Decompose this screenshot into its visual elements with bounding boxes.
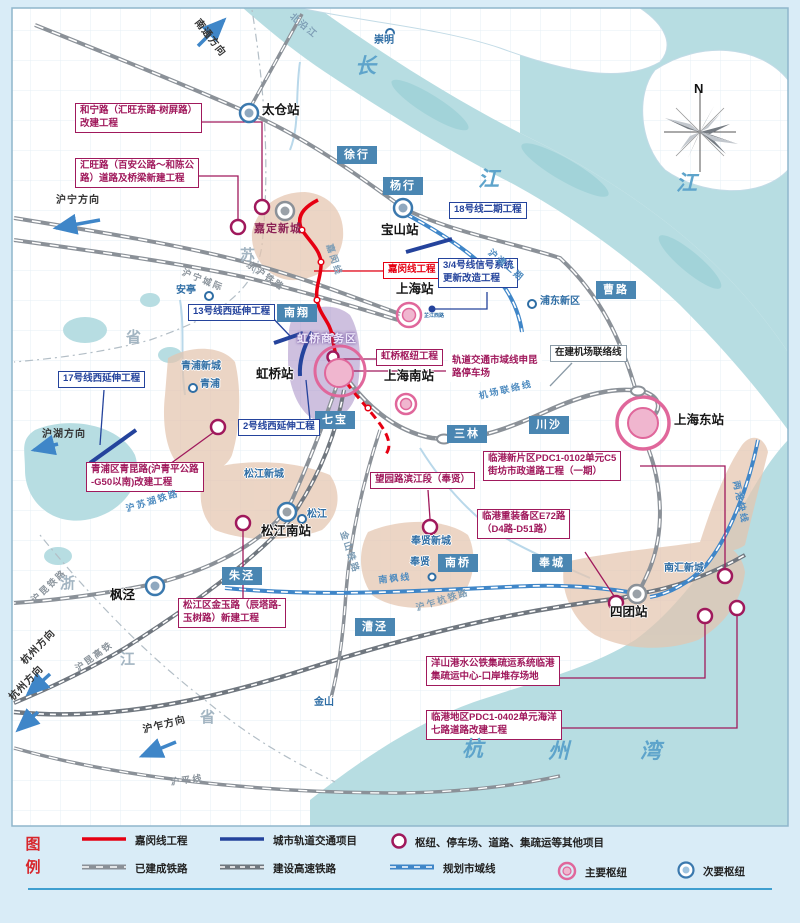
- station-label: 宝山站: [381, 224, 419, 237]
- legend-item-label: 城市轨道交通项目: [273, 835, 357, 848]
- project-label: 临港地区PDC1-0402单元海洋 七路道路改建工程: [426, 710, 562, 740]
- station-label: 虹桥站: [256, 368, 294, 381]
- station-label: 上海站: [396, 283, 434, 296]
- place-label: 青浦: [200, 380, 220, 390]
- town-label: 奉城: [532, 554, 572, 572]
- rail-legend-icon: [80, 860, 128, 879]
- legend-item-major: 主要枢纽: [556, 860, 627, 887]
- legend-item-ring: 枢纽、停车场、道路、集疏运等其他项目: [390, 832, 604, 855]
- legend-item-label: 主要枢纽: [585, 867, 627, 880]
- province-name-char: 省: [200, 710, 215, 725]
- new-town-label: 虹桥商务区: [297, 334, 357, 345]
- ring-legend-icon: [390, 832, 408, 855]
- red-line-legend-icon: [80, 832, 128, 851]
- blue-line-legend-icon: [218, 832, 266, 851]
- project-label: 嘉闵线工程: [383, 262, 441, 279]
- place-label: 松江新城: [244, 470, 284, 480]
- project-label: 在建机场联络线: [550, 345, 627, 362]
- town-label: 曹路: [596, 281, 636, 299]
- station-label: 太仓站: [262, 104, 300, 117]
- small-map-text: 芷江西路: [424, 314, 444, 319]
- shanghai-transit-map-page: N 图例 const data = JSON.parse(document.ge…: [0, 0, 800, 923]
- legend-item-minor: 次要枢纽: [676, 860, 745, 885]
- town-label: 南翔: [277, 304, 317, 322]
- town-label: 徐行: [337, 146, 377, 164]
- place-label: 金山: [314, 698, 334, 708]
- project-label: 虹桥枢纽工程: [376, 349, 443, 366]
- place-label: 南汇新城: [664, 564, 704, 574]
- station-label: 上海南站: [384, 370, 434, 383]
- legend-item-rail: 已建成铁路: [80, 860, 188, 879]
- project-label: 13号线西延伸工程: [188, 304, 275, 321]
- water-name-char: 湾: [640, 740, 661, 761]
- water-name-char: 州: [548, 740, 569, 761]
- project-label: 18号线二期工程: [449, 202, 527, 219]
- place-label: 奉贤: [410, 558, 430, 568]
- legend-item-label: 规划市域线: [443, 863, 496, 876]
- planned-legend-icon: [388, 860, 436, 879]
- project-label: 洋山港水公铁集疏运系统临港 集疏运中心-口岸堆存场地: [426, 656, 560, 686]
- town-label: 川沙: [529, 416, 569, 434]
- place-label: 浦东新区: [540, 297, 580, 307]
- place-label: 奉贤新城: [411, 537, 451, 547]
- province-name-char: 省: [126, 330, 141, 345]
- project-label: 临港重装备区E72路 （D4路-D51路）: [477, 509, 570, 539]
- legend-title: 图例: [24, 833, 42, 880]
- legend-item-blue-line: 城市轨道交通项目: [218, 832, 357, 851]
- legend-item-label: 建设高速铁路: [273, 863, 336, 876]
- project-label: 青浦区青昆路(沪青平公路 -G50以南)改建工程: [86, 462, 204, 492]
- legend-item-red-line: 嘉闵线工程: [80, 832, 188, 851]
- compass-north-label: N: [694, 82, 703, 95]
- station-label: 上海东站: [674, 414, 724, 427]
- direction-label: 沪宁方向: [56, 196, 100, 206]
- new-town-label: 嘉定新城: [254, 224, 302, 235]
- town-label: 杨行: [383, 177, 423, 195]
- province-name-char: 浙: [60, 576, 75, 591]
- project-label: 轨道交通市域线申昆 路停车场: [448, 354, 542, 382]
- station-label: 松江南站: [261, 525, 311, 538]
- legend-item-label: 次要枢纽: [703, 866, 745, 879]
- project-label: 临港新片区PDC1-0102单元C5 街坊市政道路工程（一期）: [483, 451, 621, 481]
- town-label: 南桥: [438, 554, 478, 572]
- province-name-char: 江: [120, 652, 135, 667]
- minor-legend-icon: [676, 860, 696, 885]
- signal-project-dot: [429, 306, 436, 313]
- project-label: 2号线西延伸工程: [238, 419, 320, 436]
- place-label: 安亭: [176, 286, 196, 296]
- water-name-char: 长: [355, 55, 376, 76]
- project-label: 和宁路（汇旺东路-树屏路） 改建工程: [75, 103, 202, 133]
- town-label: 三林: [447, 425, 487, 443]
- rail2-legend-icon: [218, 860, 266, 879]
- direction-label: 沪湖方向: [42, 430, 86, 440]
- major-legend-icon: [556, 860, 578, 887]
- town-label: 朱泾: [222, 567, 262, 585]
- project-label: 汇旺路（百安公路～和陈公 路）道路及桥梁新建工程: [75, 158, 199, 188]
- legend-item-label: 已建成铁路: [135, 863, 188, 876]
- province-name-char: 苏: [240, 248, 255, 263]
- water-name-char: 江: [676, 172, 697, 193]
- legend-item-rail2: 建设高速铁路: [218, 860, 336, 879]
- town-label: 七宝: [315, 411, 355, 429]
- station-label: 枫泾: [110, 589, 135, 602]
- project-label: 松江区金玉路（辰塔路- 玉树路）新建工程: [178, 598, 286, 628]
- place-label: 松江: [307, 510, 327, 520]
- legend-divider: [28, 888, 772, 890]
- station-label: 四团站: [610, 606, 648, 619]
- water-name-char: 杭: [462, 738, 483, 759]
- legend-item-label: 枢纽、停车场、道路、集疏运等其他项目: [415, 837, 604, 850]
- water-name-char: 江: [478, 168, 499, 189]
- project-label: 17号线西延伸工程: [58, 371, 145, 388]
- legend-item-label: 嘉闵线工程: [135, 835, 188, 848]
- project-label: 望园路滨江段（奉贤）: [370, 472, 475, 489]
- town-label: 漕泾: [355, 618, 395, 636]
- place-label: 青浦新城: [181, 362, 221, 372]
- legend-item-planned: 规划市域线: [388, 860, 496, 879]
- place-label: 崇明: [374, 36, 394, 46]
